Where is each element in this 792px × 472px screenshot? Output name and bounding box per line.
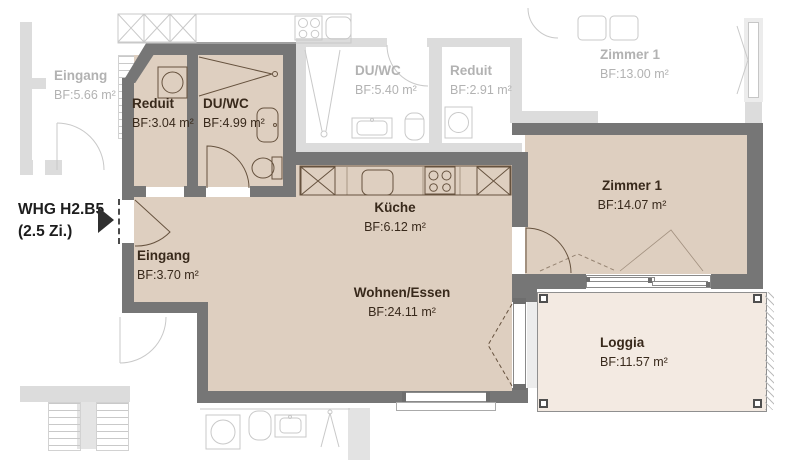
room-area: BF:24.11 m² [317,306,487,319]
room-name: Zimmer 1 [547,179,717,193]
room-label-duwc: DU/WC BF:4.99 m² [203,97,265,129]
sliding-door-handle [586,277,590,282]
wall-diagonal [122,42,162,83]
room-area: BF:14.07 m² [547,199,717,212]
room-name: Loggia [600,336,668,350]
sliding-door-handle [648,278,652,283]
window-frame-cap [486,392,490,402]
neighbor-window [748,22,759,98]
wall-segment [184,186,206,197]
room-label-kueche: Küche BF:6.12 m² [320,201,470,233]
neighbor-wall [296,38,387,47]
sliding-door-handle [706,282,710,287]
neighbor-wall [20,386,130,402]
room-area: BF:5.66 m² [54,89,116,102]
neighbor-wall [512,111,598,123]
room-label-eingang: Eingang BF:3.70 m² [137,249,199,281]
sliding-door-panel [652,281,708,286]
wall-segment [283,152,512,165]
neighbor-wall [348,408,370,460]
loggia-post [753,294,762,303]
neighbor-room-label-zimmer1: Zimmer 1 BF:13.00 m² [600,48,669,80]
neighbor-wall [296,38,306,154]
room-name: DU/WC [203,97,265,111]
shower-icon [321,413,339,447]
appliance-icon [610,16,638,40]
loggia-edge-hatch [765,292,774,410]
entry-door-opening [122,200,134,243]
tall-cabinet-icon [170,14,196,42]
door-arc [57,123,104,170]
appliance-icon [578,16,606,40]
window-frame-cap [513,384,526,390]
wall-segment [147,42,296,55]
sink-icon [326,17,351,39]
door-arc [120,317,166,363]
room-name: DU/WC [355,64,417,78]
entry-threshold-dashed [118,199,120,244]
room-name: Reduit [132,97,194,111]
wall-segment [122,302,208,313]
wardrobe-hatch [96,402,129,451]
apartment-pointer-arrow-icon [98,207,114,233]
neighbor-room-label-duwc: DU/WC BF:5.40 m² [355,64,417,96]
room-label-wohnen: Wohnen/Essen BF:24.11 m² [317,286,487,318]
toilet-icon [249,411,271,440]
room-name: Reduit [450,64,512,78]
wall-segment [512,388,528,403]
room-area: BF:3.70 m² [137,269,199,282]
room-label-zimmer1: Zimmer 1 BF:14.07 m² [547,179,717,211]
wall-segment [283,42,296,187]
neighbor-wall [20,78,46,89]
neighbor-wall [429,42,442,149]
loggia-post [539,399,548,408]
sink-icon [275,415,306,437]
wardrobe-hatch [48,402,81,451]
door-arc [528,8,558,38]
apartment-title: WHG H2.B5 (2.5 Zi.) [18,199,104,244]
room-area: BF:4.99 m² [203,117,265,130]
floor-plan: Reduit BF:3.04 m² DU/WC BF:4.99 m² Einga… [0,0,792,472]
room-name: Wohnen/Essen [317,286,487,300]
window-frame-cap [402,392,406,402]
neighbor-room-label-eingang: Eingang BF:5.66 m² [54,69,116,101]
neighbor-wall [20,160,33,175]
window [404,392,488,402]
loggia-post [753,399,762,408]
apartment-id: WHG H2.B5 [18,199,104,221]
wall-segment [512,123,763,135]
toilet-icon [405,113,424,140]
wall-segment [512,152,528,227]
room-area: BF:2.91 m² [450,84,512,97]
wall-segment [512,274,586,289]
neighbor-wall [45,160,62,175]
window-sill [396,402,496,411]
neighbor-wall [745,100,762,123]
french-window [513,302,526,388]
room-name: Eingang [137,249,199,263]
cooktop-icon [295,16,322,40]
room-fill-wohnen [208,302,296,391]
wall-segment [711,274,763,289]
neighbor-wall [20,89,32,163]
sliding-door-panel [589,277,655,282]
wall-segment [197,302,208,403]
room-fill-wohnen-kueche [296,165,512,391]
room-area: BF:13.00 m² [600,68,669,81]
neighbor-wall [296,143,522,152]
washing-machine-icon [445,107,472,138]
tall-cabinet-icon [118,14,144,42]
room-name: Küche [320,201,470,215]
room-name: Eingang [54,69,116,83]
room-area: BF:3.04 m² [132,117,194,130]
neighbor-wall [527,302,537,388]
washing-machine-icon [206,415,240,449]
room-area: BF:5.40 m² [355,84,417,97]
tall-cabinet-icon [144,14,170,42]
washbasin-icon [352,118,392,138]
apartment-rooms-count: (2.5 Zi.) [18,221,104,243]
room-area: BF:11.57 m² [600,356,668,369]
room-name: Zimmer 1 [600,48,669,62]
loggia-post [539,294,548,303]
neighbor-wall [20,22,32,78]
room-area: BF:6.12 m² [320,221,470,234]
wall-segment [747,123,763,289]
wall-segment [122,186,146,197]
room-label-loggia: Loggia BF:11.57 m² [600,336,668,368]
wall-segment [250,186,296,197]
room-label-reduit: Reduit BF:3.04 m² [132,97,194,129]
shower-icon [305,50,340,131]
neighbor-room-label-reduit: Reduit BF:2.91 m² [450,64,512,96]
window-frame-cap [513,298,526,304]
